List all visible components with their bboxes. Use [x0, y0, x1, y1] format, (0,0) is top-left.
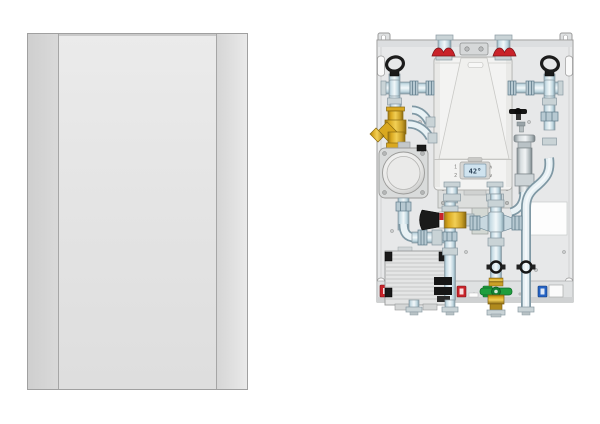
cross-union-right	[512, 216, 522, 230]
rail-blank-plate	[549, 285, 563, 297]
pipe-clip-lower	[434, 287, 452, 295]
thermo-indicator-red	[440, 213, 444, 220]
right-cross-body	[544, 80, 555, 96]
lower-pipe-union	[418, 230, 427, 245]
bracket-screw-right	[479, 47, 483, 51]
right-branch-union-2	[508, 81, 516, 95]
pump-outlet-union	[396, 202, 411, 211]
bleed-screw	[517, 122, 525, 126]
edge-slot-top-right	[566, 56, 573, 76]
button-up[interactable]: ∧	[489, 165, 493, 171]
y-strainer	[370, 104, 407, 148]
thermo-knob[interactable]	[420, 210, 440, 230]
button-1[interactable]: 1	[454, 165, 457, 171]
boiler-side-right	[506, 59, 511, 187]
top-stub-right-cap	[495, 35, 512, 40]
port-label-red-glyph	[460, 289, 464, 295]
lcd-value: 42°	[469, 168, 482, 176]
front-cover-panel	[27, 33, 248, 390]
left-branch-union-2	[426, 81, 434, 95]
button-2[interactable]: 2	[454, 173, 457, 179]
edge-slot-top-left	[378, 56, 385, 76]
top-stub-left-cap	[436, 35, 453, 40]
cover-right-band	[216, 34, 247, 389]
right-branch-union	[526, 81, 534, 95]
cover-top-edge	[28, 34, 247, 36]
chrome-body	[517, 148, 532, 174]
right-riser-union	[541, 112, 558, 121]
boiler-badge	[468, 63, 483, 68]
thermo-lower-union	[443, 232, 457, 241]
left-cross-body	[389, 80, 400, 96]
boiler-unit: 42° 1 2 ∧ ∨	[434, 57, 512, 190]
cross-union-left	[470, 216, 480, 230]
boiler-vent-slot	[468, 158, 482, 162]
button-down[interactable]: ∨	[489, 173, 493, 179]
mounting-bracket	[460, 43, 488, 55]
cross-centre	[488, 212, 504, 232]
port-label-blue-glyph	[541, 289, 545, 295]
boiler-side-left	[435, 59, 440, 187]
pump-face-inner	[387, 157, 420, 190]
thermo-valve-body	[444, 212, 466, 228]
bracket-screw-left	[465, 47, 469, 51]
control-panel: 42° 1 2 ∧ ∨	[454, 162, 493, 179]
electronics-foot-right	[423, 304, 437, 310]
rail-small-label	[469, 293, 478, 297]
heat-interface-unit: 42° 1 2 ∧ ∨	[368, 26, 580, 322]
link-bracket	[417, 145, 426, 151]
cover-left-band	[28, 34, 59, 389]
left-branch-union	[410, 81, 418, 95]
green-valve-body	[488, 295, 504, 304]
screenshot: 42° 1 2 ∧ ∨	[0, 0, 600, 424]
pipe-clip-upper	[434, 277, 452, 285]
